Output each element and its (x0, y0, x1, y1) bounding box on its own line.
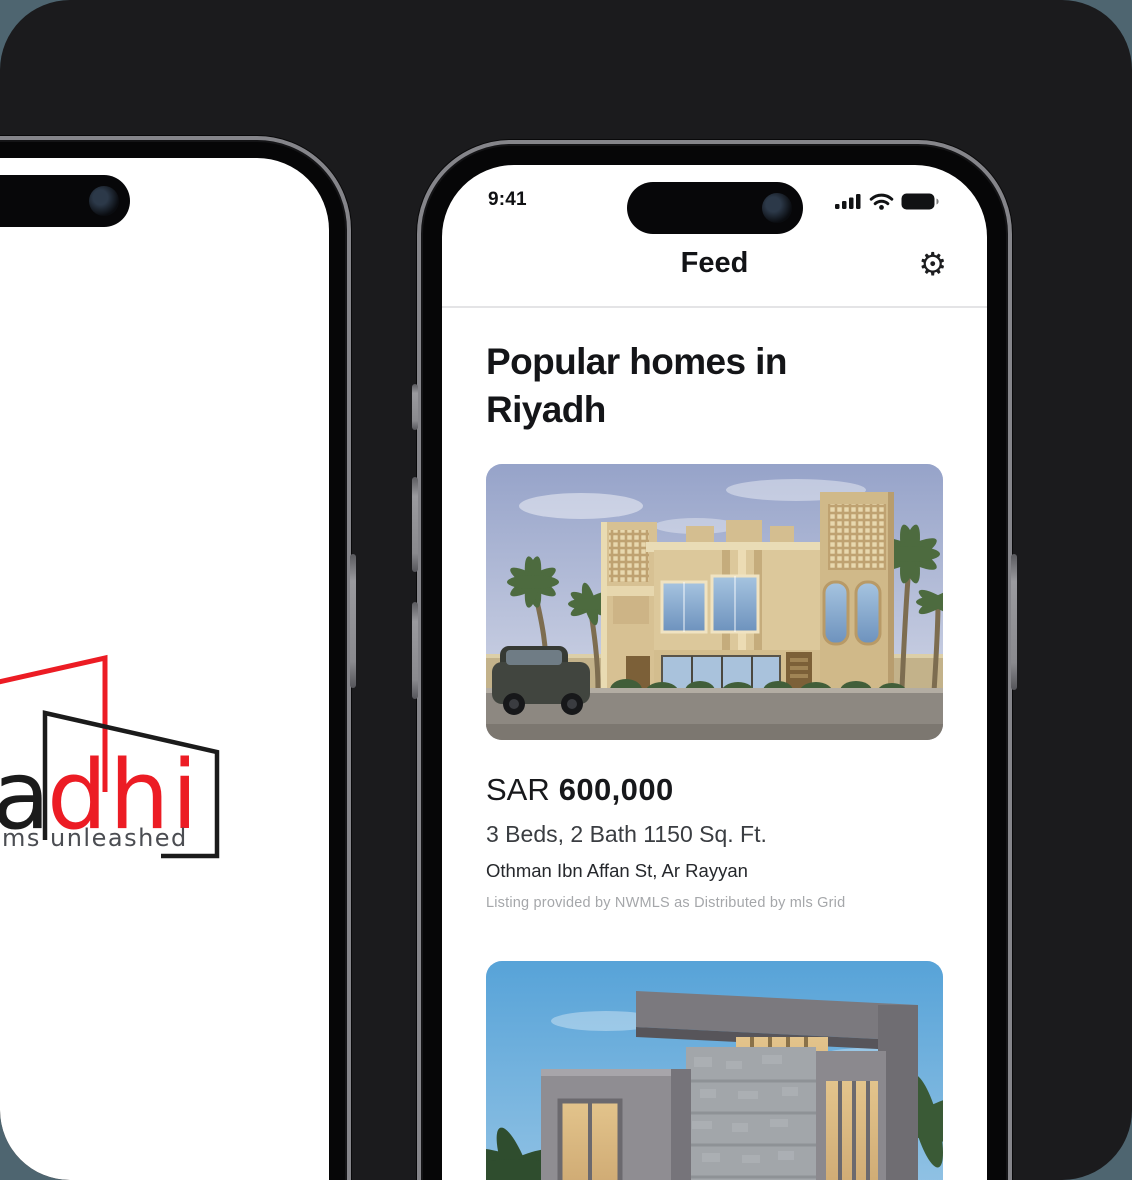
section-title: Popular homes in Riyadh (486, 338, 916, 434)
battery-icon (901, 193, 939, 210)
currency-label: SAR (486, 772, 550, 807)
listing-photo-modern-villa[interactable] (486, 961, 943, 1180)
signal-bars-icon (835, 193, 862, 210)
listing-price[interactable]: SAR600,000 (486, 772, 943, 808)
power-button (1011, 554, 1017, 690)
power-button (350, 554, 356, 688)
settings-gear-icon[interactable]: ⚙ (918, 248, 947, 280)
listing-address: Othman Ibn Affan St, Ar Rayyan (486, 860, 943, 882)
mute-switch (412, 384, 418, 430)
logo-tagline: ms unleashed (2, 824, 188, 852)
left-phone-mockup: a dhi ms unleashed (0, 136, 351, 1180)
page-background: a dhi ms unleashed 9:41 (0, 0, 1132, 1180)
dynamic-island (627, 182, 803, 234)
modern-villa-illustration (486, 961, 943, 1180)
status-icons (835, 193, 939, 210)
volume-down-button (412, 602, 418, 699)
adhi-logo: a dhi ms unleashed (0, 650, 220, 862)
showcase-card: a dhi ms unleashed 9:41 (0, 0, 1132, 1180)
feed-screen: 9:41 (442, 165, 987, 1180)
listing-photo-saudi-villa[interactable] (486, 464, 943, 740)
listing-details: 3 Beds, 2 Bath 1150 Sq. Ft. (486, 821, 943, 848)
price-value: 600,000 (559, 772, 674, 807)
header-divider (442, 306, 987, 308)
adhi-logo-graphic: a dhi ms unleashed (0, 650, 220, 862)
listing-disclaimer: Listing provided by NWMLS as Distributed… (486, 895, 943, 911)
status-time: 9:41 (488, 189, 527, 211)
left-phone-screen: a dhi ms unleashed (0, 158, 329, 1180)
camera-dot (762, 193, 792, 223)
dynamic-island (0, 175, 130, 227)
right-phone-mockup: 9:41 (417, 140, 1012, 1180)
volume-up-button (412, 477, 418, 572)
wifi-icon (869, 193, 894, 210)
feed-content: Popular homes in Riyadh (442, 338, 987, 1180)
page-title: Feed (681, 247, 749, 280)
camera-dot (89, 186, 119, 216)
saudi-villa-illustration (486, 464, 943, 740)
